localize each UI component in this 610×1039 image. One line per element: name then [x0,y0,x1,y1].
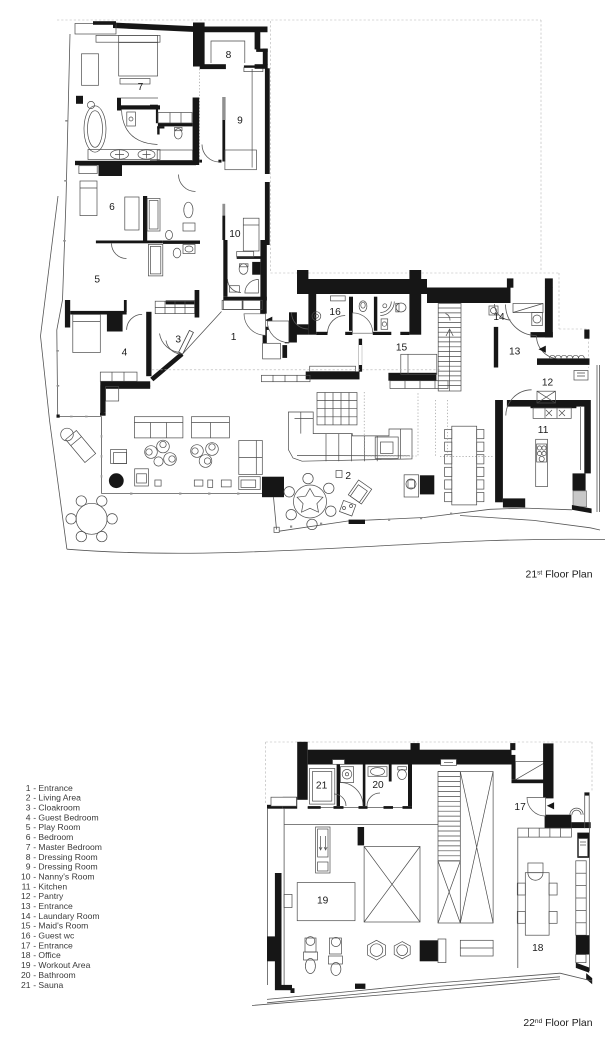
svg-text:9: 9 [237,115,243,126]
svg-text:10: 10 [21,871,31,881]
svg-text:6: 6 [109,202,115,213]
svg-text:3: 3 [175,335,181,346]
svg-text:- Dressing Room: - Dressing Room [33,852,97,862]
svg-text:6: 6 [26,832,31,842]
svg-text:20: 20 [21,970,31,980]
svg-text:19: 19 [317,895,329,906]
svg-text:- Entrance: - Entrance [33,783,73,793]
svg-text:- Pantry: - Pantry [33,891,64,901]
svg-text:- Nanny's Room: - Nanny's Room [33,871,94,881]
svg-text:- Dressing Room: - Dressing Room [33,862,97,872]
svg-text:17: 17 [21,940,31,950]
svg-text:- Maid's Room: - Maid's Room [33,921,88,931]
svg-text:- Guest Bedroom: - Guest Bedroom [33,812,98,822]
svg-text:1: 1 [231,332,237,343]
svg-text:- Cloakroom: - Cloakroom [33,803,80,813]
svg-text:- Entrance: - Entrance [33,901,73,911]
svg-text:- Workout Area: - Workout Area [33,960,90,970]
svg-text:9: 9 [26,862,31,872]
svg-text:18: 18 [532,943,544,954]
svg-text:12: 12 [21,891,31,901]
svg-text:3: 3 [26,803,31,813]
svg-text:- Entrance: - Entrance [33,940,73,950]
svg-text:- Living Area: - Living Area [33,793,81,803]
svg-text:2: 2 [26,793,31,803]
svg-text:21: 21 [316,781,328,792]
svg-text:- Bedroom: - Bedroom [33,832,73,842]
svg-text:5: 5 [94,274,100,285]
svg-text:12: 12 [542,377,554,388]
svg-text:1: 1 [26,783,31,793]
svg-text:- Sauna: - Sauna [33,980,63,990]
svg-text:20: 20 [372,780,384,791]
svg-text:14: 14 [493,312,505,323]
svg-text:7: 7 [138,82,144,93]
svg-text:5: 5 [26,822,31,832]
svg-text:22nd Floor Plan: 22nd Floor Plan [523,1018,592,1029]
svg-text:8: 8 [26,852,31,862]
svg-text:19: 19 [21,960,31,970]
svg-text:16: 16 [21,931,31,941]
svg-text:- Bathroom: - Bathroom [33,970,76,980]
svg-text:14: 14 [21,911,31,921]
svg-text:10: 10 [229,229,241,240]
svg-text:15: 15 [396,343,408,354]
svg-text:2: 2 [345,471,351,482]
svg-text:- Play Room: - Play Room [33,822,80,832]
svg-text:- Laundary Room: - Laundary Room [33,911,99,921]
svg-text:13: 13 [509,346,521,357]
svg-text:21: 21 [21,980,31,990]
svg-text:18: 18 [21,950,31,960]
svg-text:- Kitchen: - Kitchen [33,881,67,891]
svg-text:11: 11 [538,425,549,436]
svg-text:- Office: - Office [33,950,61,960]
svg-text:7: 7 [26,842,31,852]
svg-text:11: 11 [22,881,31,891]
svg-text:16: 16 [329,307,341,318]
svg-text:4: 4 [122,348,128,359]
svg-text:4: 4 [26,812,31,822]
svg-text:- Master Bedroom: - Master Bedroom [33,842,102,852]
svg-text:- Guest wc: - Guest wc [33,931,75,941]
svg-text:13: 13 [21,901,31,911]
svg-text:15: 15 [21,921,31,931]
svg-text:8: 8 [226,50,232,61]
svg-text:17: 17 [514,802,526,813]
svg-text:21st Floor Plan: 21st Floor Plan [526,570,593,581]
